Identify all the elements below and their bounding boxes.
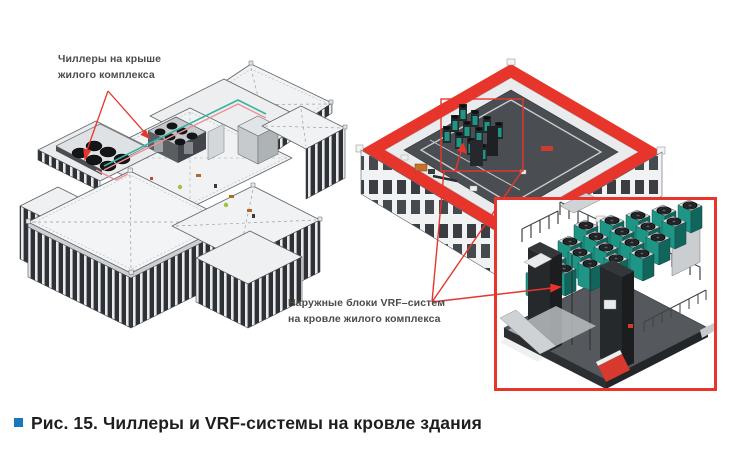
caption-bullet-icon: [14, 418, 23, 427]
vrf-label-line2: на кровле жилого комплекса: [288, 312, 445, 328]
vrf-detail-view: [494, 193, 717, 391]
chiller-building-illustration: [20, 61, 347, 328]
caption-text: Рис. 15. Чиллеры и VRF-системы на кровле…: [31, 412, 482, 435]
chillers-label: Чиллеры на крыше жилого комплекса: [58, 52, 161, 83]
vrf-label-line1: Наружные блоки VRF–систем: [288, 296, 445, 312]
chillers-label-line2: жилого комплекса: [58, 68, 161, 84]
figure-page: Чиллеры на крыше жилого комплекса Наружн…: [0, 0, 740, 458]
vrf-label: Наружные блоки VRF–систем на кровле жило…: [288, 296, 445, 327]
chillers-label-line1: Чиллеры на крыше: [58, 52, 161, 68]
figure-caption: Рис. 15. Чиллеры и VRF-системы на кровле…: [14, 412, 482, 435]
